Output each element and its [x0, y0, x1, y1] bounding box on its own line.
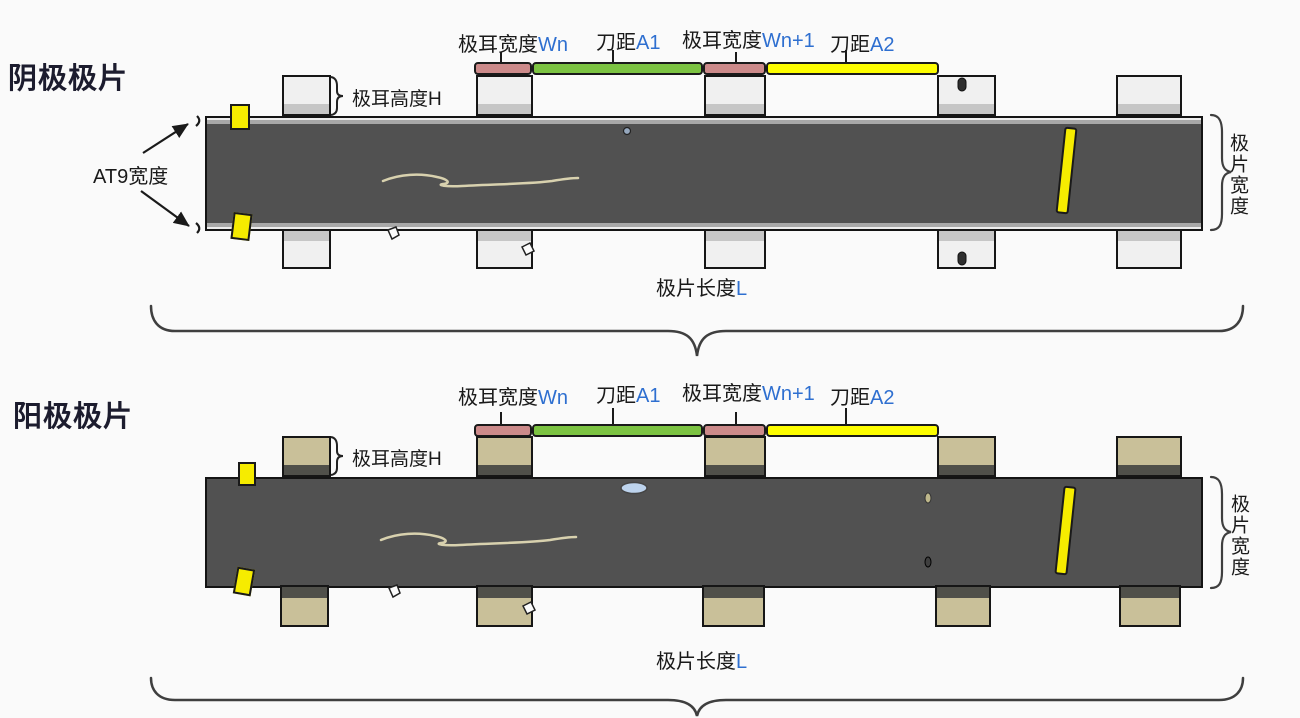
anode-knife-a1-label: 刀距A1 [596, 379, 660, 408]
cathode-strip [205, 116, 1203, 231]
cathode-bottom-tab [937, 229, 996, 269]
anode-bottom-tab [935, 585, 991, 627]
anode-tab-width-wn-label: 极耳宽度Wn [458, 381, 568, 410]
cathode-tab-height-bracket [331, 77, 343, 115]
cathode-bottom-tab [282, 229, 331, 269]
anode-top-tab [282, 436, 331, 477]
anode-sheet-length-brace [151, 678, 1243, 716]
anode-bottom-tab [702, 585, 765, 627]
cathode-title: 阴极极片 [8, 55, 128, 97]
cathode-sheet-width-label: 极片宽度 [1226, 133, 1248, 223]
anode-top-tab [704, 436, 766, 477]
cathode-tab-width-wn1-label: 极耳宽度Wn+1 [682, 24, 815, 53]
cathode-bottom-tab [1116, 229, 1182, 269]
cathode-top-tab [1116, 75, 1182, 116]
anode-top-tab [1116, 436, 1182, 477]
anode-title: 阳极极片 [13, 393, 133, 435]
cathode-edge-marker-bottom [230, 212, 252, 241]
cathode-at9-width-label: AT9宽度 [93, 160, 168, 189]
anode-bottom-tab [280, 585, 329, 627]
anode-strip [205, 477, 1203, 588]
cathode-tab-height-label: 极耳高度H [352, 84, 442, 111]
electrode-sheet-diagram: 阴极极片 极耳宽度Wn 刀距A1 极耳宽度Wn+1 刀距A2 极耳高度H [0, 0, 1300, 718]
diagram-overlay [0, 0, 1300, 718]
cathode-bottom-tab [704, 229, 766, 269]
anode-top-tab [937, 436, 996, 477]
anode-knife-a2-label: 刀距A2 [830, 381, 894, 410]
anode-tab-height-label: 极耳高度H [352, 444, 442, 471]
anode-edge-marker-bottom [233, 567, 255, 597]
anode-tab-width-wn1-label: 极耳宽度Wn+1 [682, 377, 815, 406]
anode-top-tab [476, 436, 533, 477]
anode-knife-a1-bar [532, 424, 703, 437]
cathode-top-tab [704, 75, 766, 116]
cathode-edge-marker-top [230, 104, 250, 130]
cathode-sheet-length-brace [151, 306, 1243, 356]
anode-bottom-tab [476, 585, 533, 627]
cathode-top-tab [282, 75, 331, 116]
cathode-bottom-tab [476, 229, 533, 269]
anode-sheet-length-label: 极片长度L [656, 645, 747, 674]
anode-bottom-tab [1119, 585, 1181, 627]
anode-tab-height-bracket [331, 437, 343, 475]
cathode-knife-a1-bar [532, 62, 703, 75]
cathode-top-tab [476, 75, 533, 116]
cathode-knife-a1-label: 刀距A1 [596, 26, 660, 55]
cathode-sheet-length-label: 极片长度L [656, 272, 747, 301]
cathode-knife-a2-label: 刀距A2 [830, 28, 894, 57]
anode-knife-a2-bar [766, 424, 939, 437]
anode-dimension-ticks [501, 408, 846, 424]
cathode-tab-width-n1-bar [703, 62, 766, 75]
anode-edge-marker-top [238, 462, 256, 486]
cathode-tab-width-wn-label: 极耳宽度Wn [458, 28, 568, 57]
anode-sheet-width-label: 极片宽度 [1227, 494, 1249, 584]
cathode-tab-width-bar [474, 62, 532, 75]
cathode-knife-a2-bar [766, 62, 939, 75]
cathode-top-tab [937, 75, 996, 116]
